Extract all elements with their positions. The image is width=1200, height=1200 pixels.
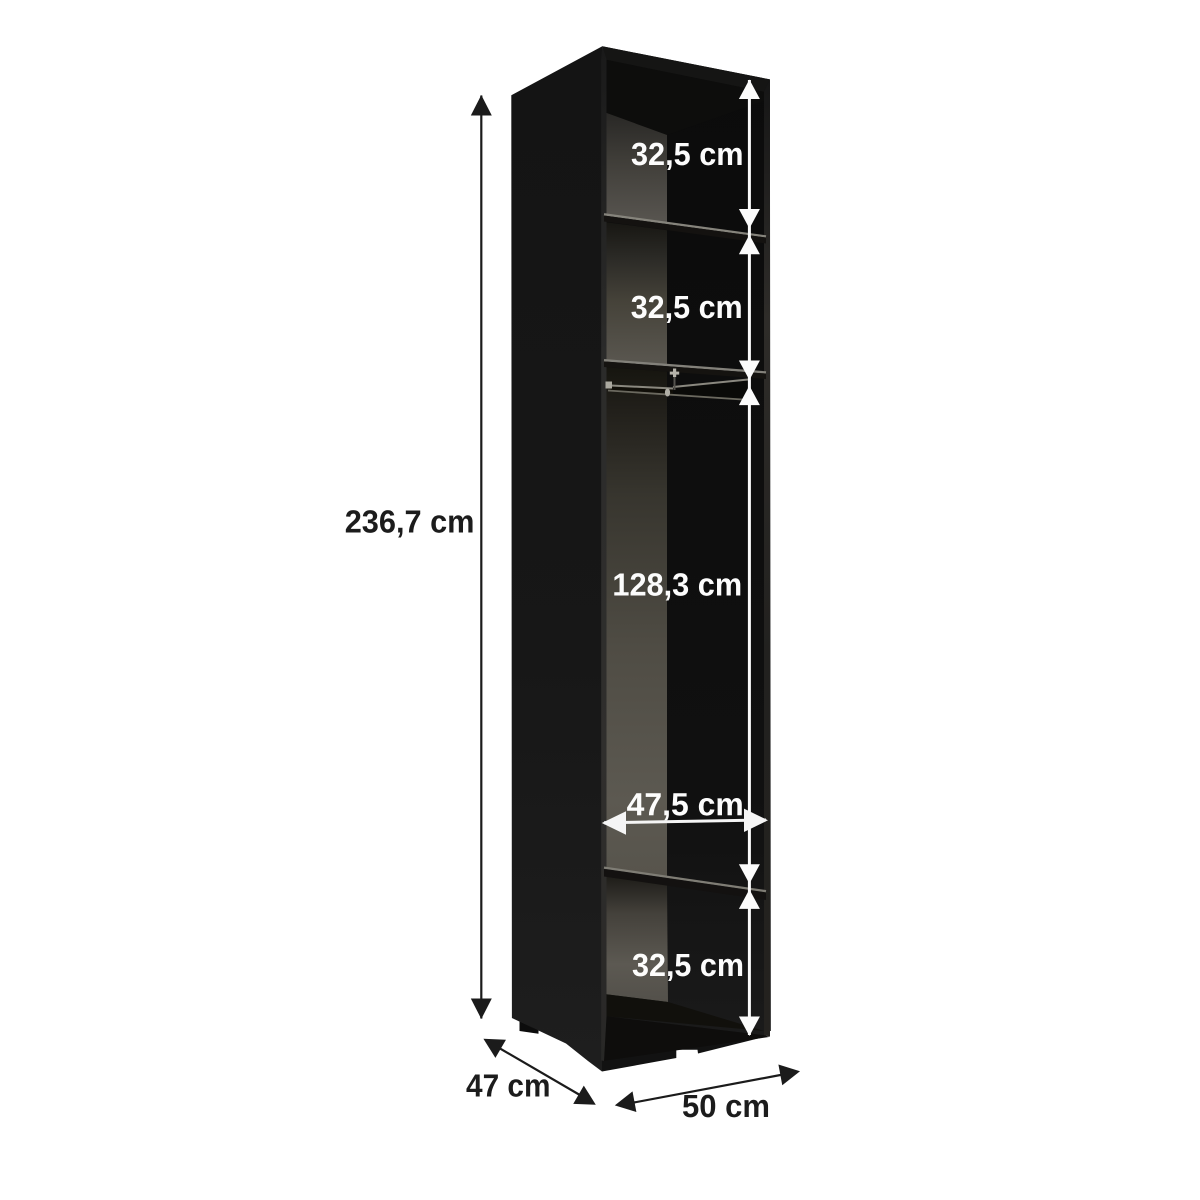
svg-text:32,5 cm: 32,5 cm [631,289,743,325]
svg-text:50 cm: 50 cm [682,1088,770,1124]
svg-text:47,5 cm: 47,5 cm [627,786,744,822]
svg-text:236,7 cm: 236,7 cm [345,504,475,540]
svg-text:32,5 cm: 32,5 cm [632,947,744,983]
svg-text:32,5 cm: 32,5 cm [631,136,744,172]
svg-text:47 cm: 47 cm [466,1068,551,1104]
svg-text:128,3 cm: 128,3 cm [612,567,742,603]
